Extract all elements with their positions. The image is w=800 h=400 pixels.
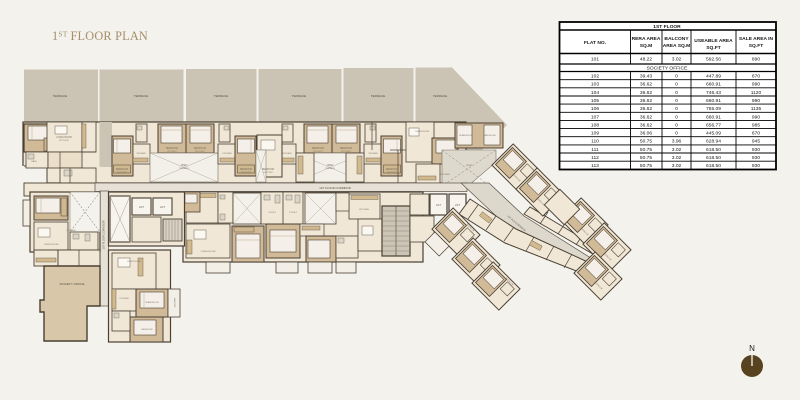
svg-text:3.02: 3.02 — [672, 163, 682, 169]
svg-text:113: 113 — [591, 163, 599, 169]
svg-text:985: 985 — [752, 122, 760, 128]
svg-text:LIFT: LIFT — [455, 203, 461, 207]
svg-text:BEDROOM: BEDROOM — [485, 135, 496, 137]
svg-text:LIVING ROOM: LIVING ROOM — [44, 244, 59, 246]
svg-text:39.43: 39.43 — [640, 74, 653, 80]
svg-text:11'6"X10'0": 11'6"X10'0" — [341, 151, 351, 153]
svg-text:445.09: 445.09 — [706, 131, 721, 137]
svg-text:103: 103 — [591, 82, 599, 88]
svg-text:BEDROOM: BEDROOM — [312, 148, 324, 150]
svg-text:36.62: 36.62 — [640, 122, 653, 128]
svg-text:10'0"X11'6": 10'0"X11'6" — [241, 172, 251, 174]
svg-text:1ST FLOOR CORRIDOR: 1ST FLOOR CORRIDOR — [102, 220, 106, 249]
svg-text:0: 0 — [675, 82, 678, 88]
svg-text:LIVING ROOM: LIVING ROOM — [201, 251, 216, 253]
svg-text:10'0"X11'6": 10'0"X11'6" — [263, 172, 273, 174]
svg-text:11'6"X10'0": 11'6"X10'0" — [167, 151, 177, 153]
svg-text:OPEN: OPEN — [327, 165, 334, 167]
svg-text:BEDROOM: BEDROOM — [142, 329, 153, 331]
svg-text:0: 0 — [675, 106, 678, 112]
svg-text:110: 110 — [591, 139, 599, 145]
svg-text:12'0"X10'6": 12'0"X10'6" — [59, 140, 69, 142]
svg-text:M.BEDROOM: M.BEDROOM — [145, 302, 158, 304]
svg-text:0: 0 — [675, 122, 678, 128]
svg-text:LIVING ROOM: LIVING ROOM — [127, 261, 141, 263]
svg-text:TERRACE: TERRACE — [433, 94, 447, 98]
svg-text:108: 108 — [591, 122, 599, 128]
svg-text:BALCONY: BALCONY — [664, 36, 689, 42]
svg-text:746.43: 746.43 — [706, 90, 721, 96]
svg-text:3.02: 3.02 — [672, 147, 682, 153]
svg-text:M.BEDROOM: M.BEDROOM — [459, 135, 472, 137]
svg-text:BEDROOM: BEDROOM — [240, 169, 252, 171]
svg-text:0: 0 — [675, 114, 678, 120]
svg-text:447.89: 447.89 — [706, 74, 721, 80]
svg-text:0: 0 — [675, 74, 678, 80]
svg-text:BEDROOM: BEDROOM — [194, 148, 206, 150]
svg-text:BATH: BATH — [31, 160, 37, 163]
svg-text:0: 0 — [675, 90, 678, 96]
svg-text:TERRACE: TERRACE — [53, 94, 67, 98]
svg-text:50.75: 50.75 — [640, 155, 653, 161]
svg-text:0: 0 — [675, 131, 678, 137]
svg-text:BEDROOM: BEDROOM — [386, 169, 398, 171]
svg-text:LIFT: LIFT — [160, 205, 166, 209]
svg-text:107: 107 — [591, 114, 599, 120]
svg-text:50.75: 50.75 — [640, 139, 653, 145]
svg-text:FLAT NO.: FLAT NO. — [584, 40, 607, 46]
svg-text:TERRACE: TERRACE — [292, 94, 306, 98]
svg-text:105: 105 — [591, 98, 599, 104]
svg-text:KITCHEN: KITCHEN — [359, 209, 369, 211]
svg-text:TERRACE: TERRACE — [134, 94, 148, 98]
svg-text:618.50: 618.50 — [706, 163, 721, 169]
svg-text:BEDROOM: BEDROOM — [166, 148, 178, 150]
svg-text:OPEN: OPEN — [181, 165, 188, 167]
svg-text:11'6"X10'0": 11'6"X10'0" — [313, 151, 323, 153]
svg-text:1ST FLOOR CORRIDOR: 1ST FLOOR CORRIDOR — [319, 186, 351, 190]
svg-text:10'0"X11'6": 10'0"X11'6" — [387, 172, 397, 174]
svg-text:930: 930 — [752, 155, 760, 161]
svg-text:656.77: 656.77 — [706, 122, 721, 128]
svg-text:10'0"X11'6": 10'0"X11'6" — [117, 172, 127, 174]
svg-text:3.02: 3.02 — [672, 57, 682, 63]
svg-text:SOCIETY OFFICE: SOCIETY OFFICE — [647, 66, 688, 72]
svg-text:48.22: 48.22 — [640, 57, 653, 63]
svg-text:KITCHEN: KITCHEN — [222, 153, 232, 155]
svg-text:36.62: 36.62 — [640, 106, 653, 112]
svg-text:TERRACE: TERRACE — [371, 94, 385, 98]
svg-text:1ST FLOOR: 1ST FLOOR — [653, 24, 681, 30]
svg-text:SQ.FT: SQ.FT — [706, 45, 720, 51]
svg-text:890: 890 — [752, 57, 760, 63]
svg-text:660.91: 660.91 — [706, 82, 721, 88]
svg-text:660.91: 660.91 — [706, 114, 721, 120]
svg-text:TERRACE: TERRACE — [214, 94, 228, 98]
svg-text:990: 990 — [752, 98, 760, 104]
svg-text:3.02: 3.02 — [672, 155, 682, 161]
svg-text:SALE AREA IN: SALE AREA IN — [739, 36, 774, 42]
svg-text:945: 945 — [752, 139, 760, 145]
svg-text:USEABLE AREA: USEABLE AREA — [694, 38, 733, 44]
svg-text:930: 930 — [752, 147, 760, 153]
svg-text:628.94: 628.94 — [706, 139, 721, 145]
svg-text:618.50: 618.50 — [706, 147, 721, 153]
svg-text:36.62: 36.62 — [640, 98, 653, 104]
svg-text:755.09: 755.09 — [706, 106, 721, 112]
svg-text:112: 112 — [591, 155, 599, 161]
svg-text:KITCHEN: KITCHEN — [67, 230, 76, 232]
svg-text:36.62: 36.62 — [640, 114, 653, 120]
svg-text:670: 670 — [752, 131, 760, 137]
svg-text:TOILET: TOILET — [268, 212, 276, 214]
svg-text:11'6"X10'0": 11'6"X10'0" — [195, 151, 205, 153]
svg-text:111: 111 — [591, 147, 599, 153]
svg-text:KITCHEN: KITCHEN — [368, 153, 378, 155]
svg-text:TERRACE: TERRACE — [325, 167, 335, 170]
svg-text:LIFT: LIFT — [139, 205, 145, 209]
svg-text:109: 109 — [591, 131, 599, 137]
svg-text:KITCHEN: KITCHEN — [136, 153, 146, 155]
svg-text:KITCHEN: KITCHEN — [440, 174, 450, 176]
svg-text:LIFT: LIFT — [436, 203, 442, 207]
svg-text:LIVING ROOM: LIVING ROOM — [56, 137, 71, 139]
svg-text:RERA AREA: RERA AREA — [632, 36, 661, 42]
svg-text:AREA SQ.M: AREA SQ.M — [663, 43, 691, 49]
svg-text:BEDROOM: BEDROOM — [262, 169, 274, 171]
svg-text:1135: 1135 — [751, 106, 762, 112]
svg-text:KITCHEN: KITCHEN — [120, 298, 129, 300]
svg-text:BEDROOM: BEDROOM — [340, 148, 352, 150]
svg-text:BALCONY: BALCONY — [173, 298, 176, 308]
svg-text:SQ.M: SQ.M — [640, 43, 653, 49]
svg-text:618.50: 618.50 — [706, 155, 721, 161]
svg-text:101: 101 — [591, 57, 599, 63]
svg-text:50.75: 50.75 — [640, 163, 653, 169]
svg-text:TERRACE: TERRACE — [179, 167, 189, 170]
svg-text:0: 0 — [675, 98, 678, 104]
svg-text:592.56: 592.56 — [706, 57, 721, 63]
svg-text:SOCIETY OFFICE: SOCIETY OFFICE — [60, 282, 85, 286]
svg-text:36.62: 36.62 — [640, 82, 653, 88]
svg-text:50.75: 50.75 — [640, 147, 653, 153]
svg-text:N: N — [749, 344, 755, 353]
svg-text:670: 670 — [752, 74, 760, 80]
svg-text:36.06: 36.06 — [640, 131, 653, 137]
svg-text:KITCHEN: KITCHEN — [282, 153, 292, 155]
svg-text:930: 930 — [752, 163, 760, 169]
svg-text:660.91: 660.91 — [706, 98, 721, 104]
svg-text:104: 104 — [591, 90, 599, 96]
svg-text:1120: 1120 — [751, 90, 762, 96]
svg-text:102: 102 — [591, 74, 599, 80]
svg-text:LIVING ROOM: LIVING ROOM — [415, 131, 429, 133]
svg-text:990: 990 — [752, 114, 760, 120]
svg-text:SQ.FT: SQ.FT — [749, 43, 763, 49]
svg-text:990: 990 — [752, 82, 760, 88]
svg-text:3.96: 3.96 — [672, 139, 682, 145]
svg-text:OPEN: OPEN — [466, 165, 473, 167]
svg-text:36.62: 36.62 — [640, 90, 653, 96]
svg-text:TOILET: TOILET — [289, 212, 297, 214]
svg-text:BEDROOM: BEDROOM — [116, 169, 128, 171]
svg-text:106: 106 — [591, 106, 599, 112]
